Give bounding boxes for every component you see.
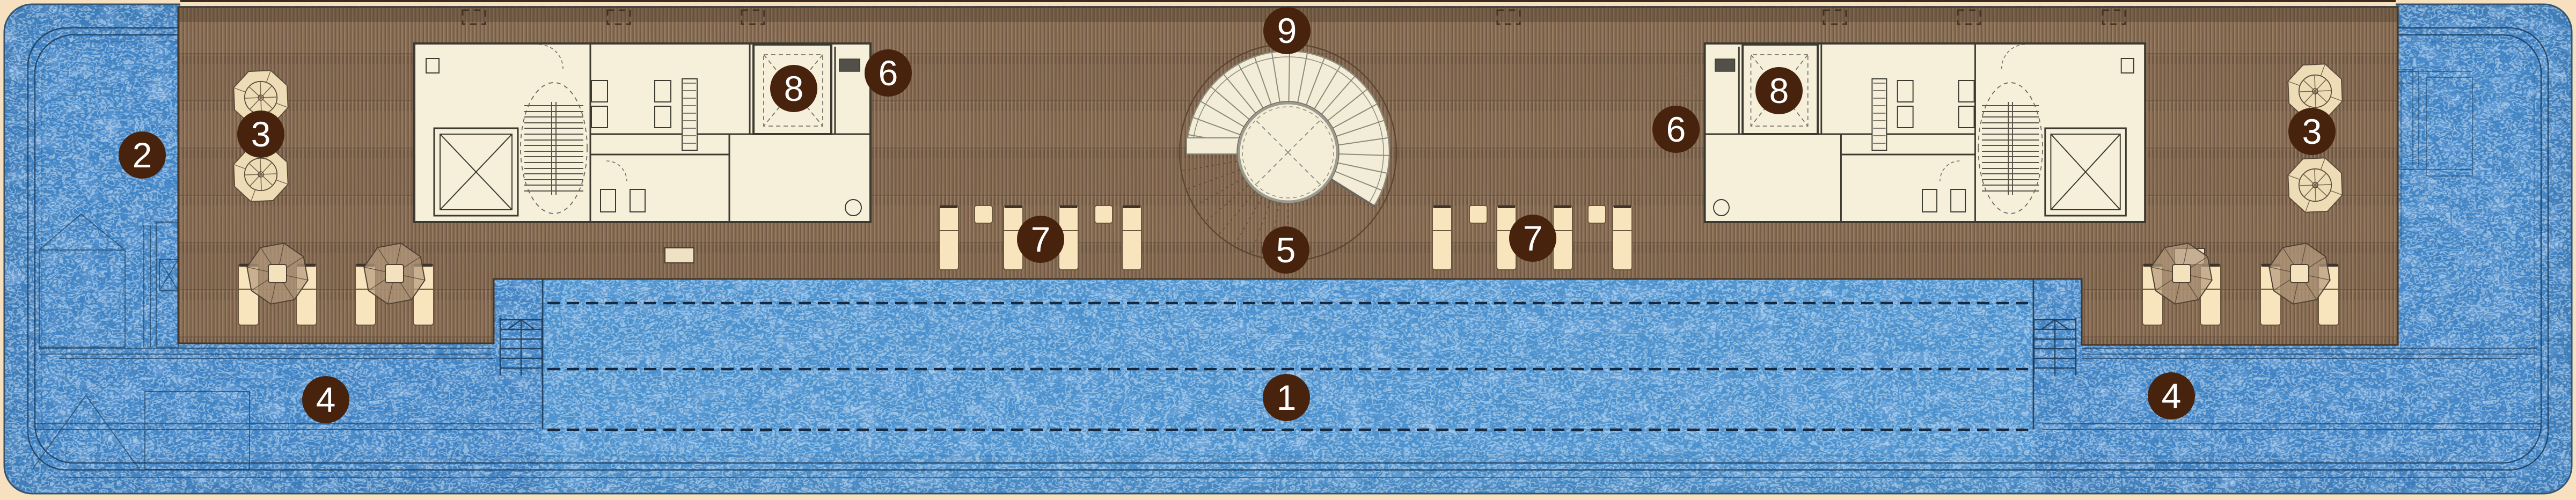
svg-text:2: 2 xyxy=(133,135,152,175)
svg-text:4: 4 xyxy=(2162,376,2182,416)
svg-text:3: 3 xyxy=(251,114,271,154)
svg-text:3: 3 xyxy=(2302,112,2322,151)
svg-text:6: 6 xyxy=(879,53,898,93)
svg-text:6: 6 xyxy=(1666,109,1686,149)
svg-text:8: 8 xyxy=(784,69,804,108)
svg-text:4: 4 xyxy=(316,380,336,420)
svg-text:1: 1 xyxy=(1277,378,1297,417)
svg-text:8: 8 xyxy=(1769,71,1789,111)
svg-text:5: 5 xyxy=(1276,230,1296,270)
svg-text:7: 7 xyxy=(1523,218,1543,258)
svg-text:7: 7 xyxy=(1031,219,1051,259)
svg-text:9: 9 xyxy=(1277,11,1297,50)
